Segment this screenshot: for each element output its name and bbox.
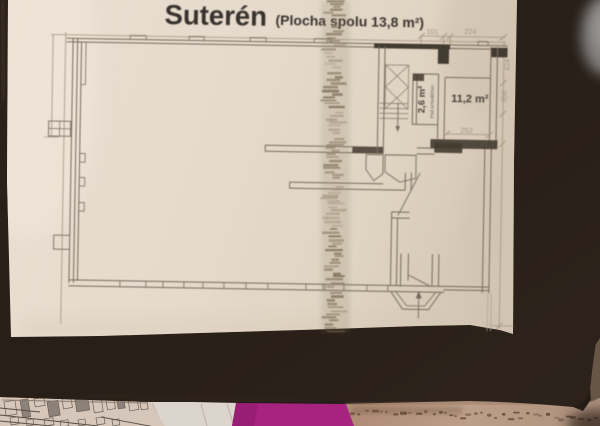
svg-text:350: 350 <box>502 90 509 102</box>
svg-text:2,6 m²: 2,6 m² <box>416 86 427 114</box>
svg-text:224: 224 <box>464 29 476 36</box>
svg-text:11,2 m²: 11,2 m² <box>451 93 489 106</box>
svg-text:101: 101 <box>426 29 438 36</box>
svg-text:Pod schodišťom: Pod schodišťom <box>429 85 435 118</box>
svg-text:252: 252 <box>460 126 473 135</box>
svg-text:Suterén: Suterén <box>164 0 267 32</box>
svg-text:424: 424 <box>505 59 512 71</box>
